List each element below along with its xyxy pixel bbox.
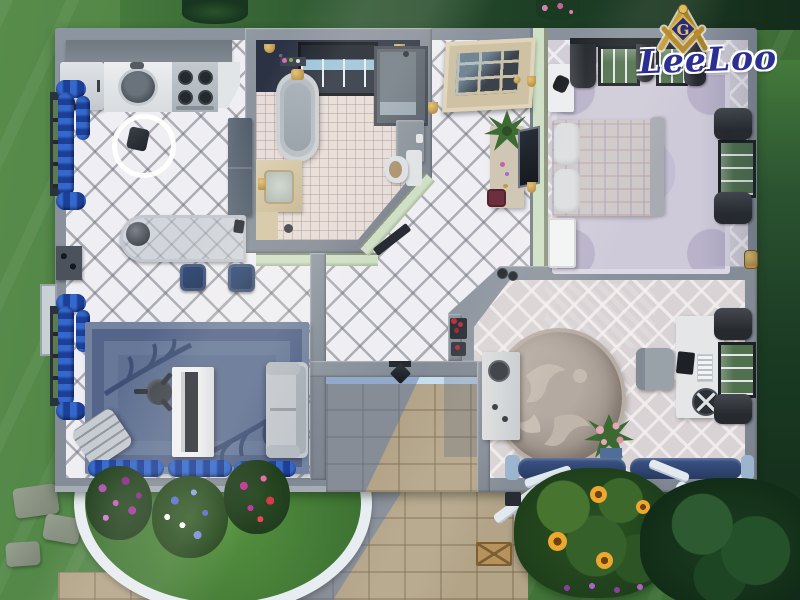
sofa-back xyxy=(296,366,306,454)
dark-drape[interactable] xyxy=(714,192,752,224)
dark-drape[interactable] xyxy=(714,108,752,140)
red-flower xyxy=(454,328,459,333)
purple-flower-strip xyxy=(552,578,652,598)
blue-curtain[interactable] xyxy=(56,192,86,210)
creator-watermark: G LeeLoo xyxy=(618,2,798,90)
piano-lid xyxy=(185,372,198,452)
blue-curtain[interactable] xyxy=(58,306,74,406)
sofa-cushion-line xyxy=(270,408,296,411)
dark-drape[interactable] xyxy=(714,308,752,340)
toilet[interactable] xyxy=(384,156,408,183)
vanity-cabinet xyxy=(256,212,278,240)
sunflower xyxy=(548,532,567,551)
perfume-bottle xyxy=(282,58,287,63)
wall-shelf[interactable] xyxy=(56,246,82,280)
vanity-sink[interactable] xyxy=(256,160,302,212)
cabinet-knob xyxy=(492,404,498,410)
shower-interior xyxy=(380,52,416,102)
bedroom-side-window[interactable] xyxy=(718,140,756,198)
laptop[interactable] xyxy=(676,351,695,375)
red-detail xyxy=(455,345,460,350)
floor-drain xyxy=(284,224,293,233)
sunflower xyxy=(590,486,607,503)
pillow xyxy=(554,123,580,165)
study-window[interactable] xyxy=(718,342,756,398)
cosmetic-item xyxy=(500,162,505,167)
porch-shade-right xyxy=(444,377,477,457)
bedroom-door-open[interactable] xyxy=(548,218,576,268)
coffee-machine[interactable] xyxy=(126,222,150,246)
creator-name: LeeLoo xyxy=(617,37,799,91)
toilet-bowl xyxy=(389,161,402,178)
tree-bottom-right[interactable] xyxy=(640,478,800,600)
tall-cabinet[interactable] xyxy=(228,118,252,216)
decor-bowl[interactable] xyxy=(508,271,518,281)
blue-curtain[interactable] xyxy=(58,92,74,196)
perfume-bottle xyxy=(289,58,293,62)
grey-sofa[interactable] xyxy=(266,362,308,458)
shower-glass xyxy=(380,102,416,115)
sink-basin xyxy=(118,68,158,106)
boot-scraper[interactable] xyxy=(505,492,521,506)
front-door[interactable] xyxy=(442,38,536,113)
wooden-crate[interactable] xyxy=(476,542,512,566)
upper-cabinets[interactable] xyxy=(66,40,232,64)
red-flower xyxy=(458,322,463,327)
piano-stool[interactable] xyxy=(146,379,172,405)
floorplan-screenshot: G LeeLoo xyxy=(0,0,800,600)
dark-drape[interactable] xyxy=(714,394,752,424)
navy-sofa-arm xyxy=(741,455,754,480)
sofa-arm xyxy=(266,362,300,375)
piano[interactable] xyxy=(172,367,214,457)
blue-curtain[interactable] xyxy=(76,96,90,140)
bar-stool[interactable] xyxy=(180,264,206,291)
light-switch[interactable] xyxy=(744,250,758,269)
perfume-bottle xyxy=(296,59,300,63)
tub-faucet xyxy=(291,69,304,80)
purple-flower-bush[interactable] xyxy=(86,466,152,540)
leaning-mirror[interactable] xyxy=(518,126,540,189)
stone-block[interactable] xyxy=(5,541,41,567)
nightstand-decor xyxy=(551,74,570,94)
flower-stand[interactable] xyxy=(450,318,467,339)
stove[interactable] xyxy=(172,62,218,112)
wall-sconce[interactable] xyxy=(527,182,536,193)
wall-sconce[interactable] xyxy=(527,76,536,87)
gramophone-wheel xyxy=(488,360,510,382)
toilet-paper xyxy=(416,134,423,143)
burner xyxy=(178,90,193,105)
keyboard xyxy=(697,354,713,382)
footboard xyxy=(650,117,664,217)
decor-bowl[interactable] xyxy=(497,268,508,279)
perfume-shelf[interactable] xyxy=(280,57,306,66)
dark-drape[interactable] xyxy=(570,44,596,88)
pink-flower-bush[interactable] xyxy=(536,0,580,20)
burner xyxy=(198,90,213,105)
counter-item[interactable] xyxy=(233,219,245,233)
sink-faucet xyxy=(130,62,144,69)
oven-handle xyxy=(176,106,214,110)
blue-valance[interactable] xyxy=(168,460,232,477)
red-stool[interactable] xyxy=(487,189,506,207)
tub-basin xyxy=(284,83,311,151)
desk-chair[interactable] xyxy=(636,348,674,390)
bar-stool[interactable] xyxy=(228,264,255,292)
sofa-arm xyxy=(266,445,300,458)
pillow xyxy=(554,169,580,213)
wall-sconce[interactable] xyxy=(428,102,438,114)
emblem-letter: G xyxy=(677,21,690,39)
door-knob xyxy=(513,76,520,83)
cosmetic-item xyxy=(505,172,509,176)
stool-leg xyxy=(134,389,148,394)
clutter-box[interactable] xyxy=(451,342,466,356)
blue-curtain[interactable] xyxy=(56,402,86,420)
fridge-handle xyxy=(97,80,100,92)
clawfoot-tub[interactable] xyxy=(276,72,319,162)
blue-flower-cluster[interactable] xyxy=(152,476,228,558)
burner xyxy=(178,70,193,85)
vanity-faucet xyxy=(258,178,266,190)
porch-floor xyxy=(326,377,477,492)
cosmetic-item xyxy=(503,184,508,188)
red-flower xyxy=(451,318,457,324)
magenta-flower-bush[interactable] xyxy=(224,460,290,534)
bush-top-icon[interactable] xyxy=(182,0,248,24)
toilet-tank xyxy=(406,150,422,186)
sunflower xyxy=(596,552,613,569)
shower-stall[interactable] xyxy=(374,46,428,126)
gramophone-cabinet[interactable] xyxy=(482,352,520,440)
cabinet-knob xyxy=(502,416,508,422)
chair-back xyxy=(636,348,645,390)
door-panes xyxy=(455,50,519,95)
vanity-basin xyxy=(264,170,294,204)
shower-head xyxy=(403,51,409,57)
burner xyxy=(198,70,213,85)
